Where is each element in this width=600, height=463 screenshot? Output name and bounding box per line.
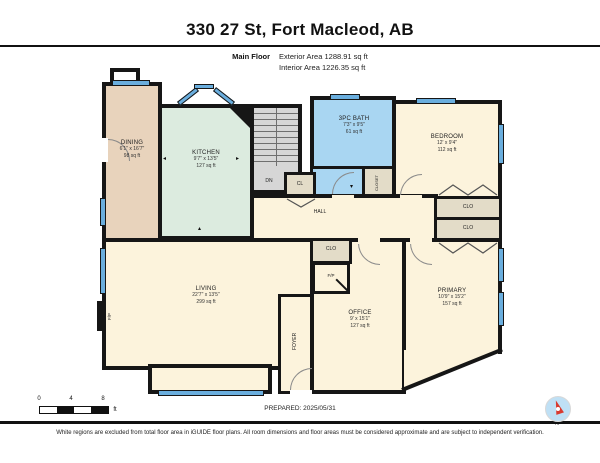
page-title: 330 27 St, Fort Macleod, AB bbox=[0, 20, 600, 40]
foyer-label: FOYER bbox=[292, 326, 298, 356]
room-area: 127 sq ft bbox=[160, 163, 252, 170]
floor-area-summary: Main Floor Exterior Area 1288.91 sq ft I… bbox=[0, 51, 600, 73]
window bbox=[498, 248, 504, 282]
kitchen-room bbox=[158, 104, 254, 240]
scale-bar-segments bbox=[39, 406, 109, 414]
clo-label: CLO bbox=[434, 225, 502, 231]
door-gap bbox=[290, 390, 312, 395]
floor-label: Main Floor bbox=[232, 51, 270, 73]
stairs-dn-label: DN bbox=[254, 178, 284, 184]
fireplace-living-bump bbox=[97, 301, 104, 331]
door-gap bbox=[358, 238, 380, 244]
clo-label: CLO bbox=[310, 246, 352, 252]
bath-label: 3PC BATH 7'3" x 9'5" 61 sq ft bbox=[316, 116, 392, 135]
window bbox=[112, 80, 150, 86]
door-gap bbox=[332, 195, 354, 201]
exterior-area: Exterior Area 1288.91 sq ft bbox=[279, 51, 368, 62]
bifold-door-icon bbox=[438, 242, 498, 254]
bifold-door-icon bbox=[286, 198, 316, 208]
bedroom-label: BEDROOM 12' x 9'4" 112 sq ft bbox=[394, 134, 500, 153]
floor-area-values: Exterior Area 1288.91 sq ft Interior Are… bbox=[279, 51, 368, 73]
opening-arrow-icon: ▴ bbox=[198, 226, 201, 232]
fireplace-label: F/P bbox=[107, 304, 112, 328]
header-divider bbox=[0, 45, 600, 47]
bay-window-center bbox=[194, 84, 214, 89]
compass-cap bbox=[556, 407, 560, 411]
primary-label: PRIMARY 10'9" x 15'2" 157 sq ft bbox=[404, 288, 500, 307]
compass-icon bbox=[545, 396, 571, 422]
stair-rail bbox=[276, 108, 277, 166]
dining-room bbox=[102, 82, 162, 242]
scale-tick: 0 bbox=[34, 396, 44, 402]
bifold-door-icon bbox=[438, 184, 498, 196]
room-area: 299 sq ft bbox=[146, 299, 266, 306]
room-area: 61 sq ft bbox=[316, 129, 392, 136]
room-area: 127 sq ft bbox=[320, 323, 400, 330]
window bbox=[100, 198, 106, 226]
room-area: 112 sq ft bbox=[394, 147, 500, 154]
floorplan-page: { "header": { "title": "330 27 St, Fort … bbox=[0, 0, 600, 463]
interior-area: Interior Area 1226.35 sq ft bbox=[279, 62, 368, 73]
dining-label: DINING 6'1" x 16'7" 98 sq ft bbox=[102, 140, 162, 159]
living-label: LIVING 22'7" x 13'5" 299 sq ft bbox=[146, 286, 266, 305]
window bbox=[416, 98, 456, 104]
scale-tick: 4 bbox=[66, 396, 76, 402]
room-area: 157 sq ft bbox=[404, 301, 500, 308]
window bbox=[330, 94, 360, 100]
window bbox=[158, 390, 264, 396]
clo-label: CLO bbox=[434, 204, 502, 210]
scale-tick: 8 bbox=[98, 396, 108, 402]
fireplace-office bbox=[312, 262, 350, 294]
kitchen-label: KITCHEN 9'7" x 13'5" 127 sq ft bbox=[160, 150, 252, 169]
closet-label: CLOSET bbox=[374, 169, 379, 197]
footer-divider bbox=[0, 421, 600, 424]
fireplace-label: F/P bbox=[312, 273, 350, 278]
disclaimer-text: White regions are excluded from total fl… bbox=[0, 430, 600, 436]
cl-closet-label: CL bbox=[284, 181, 316, 187]
door-gap bbox=[410, 238, 432, 244]
window bbox=[100, 248, 106, 294]
opening-arrow-icon: ▾ bbox=[350, 184, 353, 190]
office-label: OFFICE 9' x 15'1" 127 sq ft bbox=[320, 310, 400, 329]
room-area: 98 sq ft bbox=[102, 153, 162, 160]
hallway bbox=[250, 194, 438, 242]
door-gap bbox=[400, 195, 422, 201]
hall-label: HALL bbox=[250, 209, 390, 215]
